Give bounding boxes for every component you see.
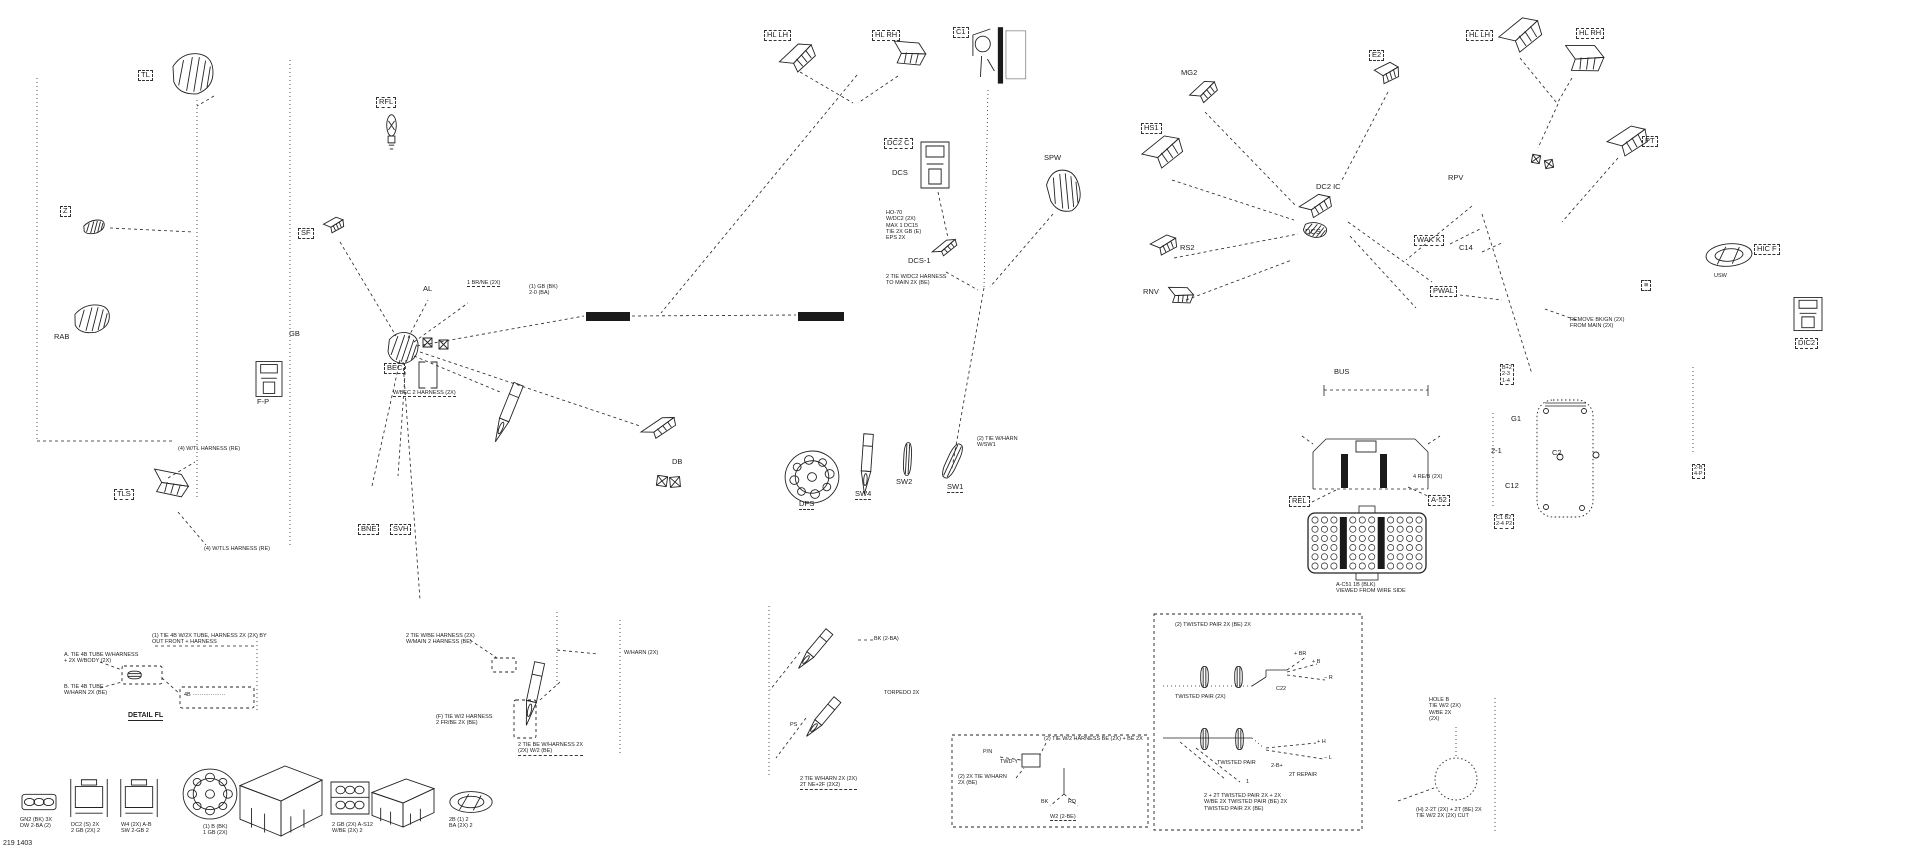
label-rd: RD [1068,799,1076,805]
label-dcs: DCS [892,169,908,178]
label-b-2-2-3-1-4: B+2 2-3 1-4 [1500,364,1514,385]
label-db: DB [672,458,682,467]
label-a-52: A-52 [1428,495,1450,506]
label-rel: REL [1289,496,1310,507]
label-r: − R [1324,675,1333,681]
label-torpedo-2x: TORPEDO 2X [884,690,919,696]
label-b-tie-4b-tube-w-harn-2x-: B. TIE 4B TUBE W/HARN 2X (BE) [64,684,107,697]
label-dps: DPS [799,500,814,510]
label-dcs-1: DCS-1 [908,257,931,266]
label-rfl: RFL [376,97,396,108]
label-2-tie-w-harn-w-sw1: (2) TIE W/HARN W/SW1 [977,436,1018,449]
label-a-tie-4b-tube-w-harness-: A. TIE 4B TUBE W/HARNESS + 2X W/BODY (2X… [64,652,138,665]
label-p-n: P/N [983,749,992,755]
label-pwal: PWAL [1430,286,1457,297]
label-219-1403: 219 1403 [3,840,32,848]
label-f-p: F-P [257,398,269,407]
label-c2: C2 [1552,449,1562,458]
label-2-tie-w-dc2-harness-to-m: 2 TIE W/DC2 HARNESS TO MAIN 2X (BE) [886,274,946,287]
label-4-w-tl-harness-re: (4) W/TL HARNESS (RE) [178,446,240,452]
label-2-1: 2-1 [1491,447,1502,456]
label-rnv: RNV [1143,288,1159,297]
label-c22: C22 [1276,686,1286,692]
label-2b-1-2-ba-2x-2: 2B (1) 2 BA (2X) 2 [449,817,473,830]
label-bec: BEC [384,363,405,374]
wiring-diagram-page: TLZSFRFLTLSBECBNESVHDC2 CHL LHHL RHHL LH… [0,0,1920,854]
label-b: + B [1312,659,1320,665]
label-bus: BUS [1334,368,1349,377]
label-2-tie-w-2-harness-be-2x-: (2) TIE W/2 HARNESS BE (2X) + BE 2X [1044,736,1143,742]
label-2-tie-be-w-harness-2x-2x: 2 TIE BE W/HARNESS 2X (2X) W/2 (BE) [518,742,583,756]
label-w2-2-be: W2 (2-BE) [1050,814,1076,821]
label-hl-rh: HL RH [1576,28,1604,39]
label-rab: RAB [54,333,69,342]
label-c1: C1 [953,27,969,38]
label-g1: G1 [1511,415,1521,424]
label-e2: E2 [1369,50,1384,61]
label-ho-70-w-dc2-2x-max-1-dc1: HO-70 W/DC2 (2X) MAX 1 DC15 TIE 2X GB (E… [886,210,921,242]
label-hs1: HS1 [1141,123,1162,134]
label-1-tie-4b-w-2x-tube-harne: (1) TIE 4B W/2X TUBE, HARNESS 2X (2X) BY… [152,633,267,646]
label-a-c51-1b-blk-viewed-from: A-C51 1B (BLK) VIEWED FROM WIRE SIDE [1336,582,1406,595]
label-mg2: MG2 [1181,69,1197,78]
label-f-tie-w-2-harness-2-fr-b: (F) TIE W/2 HARNESS 2 FR/BE 2X (BE) [436,714,492,727]
label-sw4: SW4 [855,490,871,500]
label-4-w-tls-harness-re: (4) W/TLS HARNESS (RE) [204,546,270,552]
label-dc2-ic: DC2 IC [1316,183,1341,192]
label-spw: SPW [1044,154,1061,163]
label-rpv: RPV [1448,174,1463,183]
label-2-tie-w-be-harness-2x-w-: 2 TIE W/BE HARNESS (2X) W/MAIN 2 HARNESS… [406,633,475,646]
label-w4-2x-a-b-sw-2-gb-2: W4 (2X) A-B SW 2-GB 2 [121,822,152,835]
label-c12: C12 [1505,482,1519,491]
label-hic-f: HIC F [1754,244,1780,255]
label-2-gb-2x-a-s12-w-be-2x-2: 2 GB (2X) A-S12 W/BE (2X) 2 [332,822,373,835]
label-: ≡ [1641,280,1651,291]
label-usw: USW [1714,273,1727,279]
label-hl-rh: HL RH [872,30,900,41]
label-rs2: RS2 [1180,244,1195,253]
label-1-gb-bk-2-0-ba: (1) GB (BK) 2-0 (BA) [529,284,558,297]
label-l: − L [1324,755,1332,761]
label-remove-bk-gn-2x-from-mai: REMOVE BK/GN (2X) FROM MAIN (2X) [1570,317,1624,330]
label-sf: SF [298,228,314,239]
label-h: + H [1317,739,1326,745]
label-w-harn-2x: W/HARN (2X) [624,650,658,656]
label-gb: GB [289,330,300,339]
label-hl-lh: HL LH [764,30,791,41]
label-2-twisted-pair-2x-be-2x: (2) TWISTED PAIR 2X (BE) 2X [1175,622,1251,628]
label-br: + BR [1294,651,1306,657]
label-ps: PS [790,722,797,728]
label-1-b-bk-1-gb-2x: (1) B (BK) 1 GB (2X) [203,824,227,837]
label-twd-y: TWD-Y [1000,759,1018,765]
label-2-b: 2-B+ [1271,763,1283,769]
label-pt: PT [1642,136,1658,147]
label-gn2-bk-3x-dw-2-ba-2: GN2 (BK) 3X DW 2-BA (2) [20,817,52,830]
label-twisted-pair: TWISTED PAIR [1217,760,1256,766]
label-1-br-ne-2x: 1 BR/NE (2X) [467,280,500,287]
label-z: Z [60,206,71,217]
label-dc2-s-2x-2-gb-2x-2: DC2 (S) 2X 2 GB (2X) 2 [71,822,100,835]
label-c1-b2-2-4-p2: C1 B2 2-4 P2 [1494,514,1514,529]
label-detail-fl: DETAIL FL [128,712,163,721]
label-tls: TLS [114,489,134,500]
label-al: AL [423,285,432,294]
label-bk-2-ba: BK (2-BA) [874,636,899,642]
label-dc2-c: DC2 C [884,138,913,149]
label-twisted-pair-2x: TWISTED PAIR (2X) [1175,694,1226,700]
label-2t-repair: 2T REPAIR [1289,772,1317,778]
label-1: 1 [1246,779,1249,785]
label-hl-lh: HL LH [1466,30,1493,41]
label-h-2-2t-2x-2t-be-2x-tie-w: (H) 2-2T (2X) + 2T (BE) 2X TIE W/2 2X (2… [1416,807,1482,820]
label-wak-k: WAK K [1414,235,1444,246]
label-c14: C14 [1459,244,1473,253]
label-4-re-b-2x: 4 RE/B (2X) [1413,474,1442,480]
label-dic2: DIC2 [1795,338,1818,349]
label-w-bec-2-harness-2x: W/BEC 2 HARNESS (2X) [393,390,456,397]
label-2-b-4-p: 2-B 4-P [1692,464,1705,479]
label-2-2x-tie-w-harn-2x-be: (2) 2X TIE W/HARN 2X (BE) [958,774,1007,787]
label-tl: TL [138,70,153,81]
label-svh: SVH [390,524,411,535]
label-2-2t-twisted-pair-2x-2x-: 2 + 2T TWISTED PAIR 2X + 2X W/BE 2X TWIS… [1204,793,1287,812]
label-dcs: DCS [1305,228,1321,237]
label-bne: BNE [358,524,379,535]
label-sw2: SW2 [896,478,912,487]
label-sw1: SW1 [947,483,963,493]
label-2-tie-w-harn-2x-2x-2t-ne: 2 TIE W/HARN 2X (2X) 2T NE+2F (2X2) [800,776,857,790]
label-4b: 4B ·················· [184,692,225,698]
label-hole-b-tie-w-2-2x-w-be-2: HOLE B TIE W/2 (2X) W/BE 2X (2X) [1429,697,1461,722]
label-layer: TLZSFRFLTLSBECBNESVHDC2 CHL LHHL RHHL LH… [0,0,1920,854]
label-bk: BK [1041,799,1048,805]
